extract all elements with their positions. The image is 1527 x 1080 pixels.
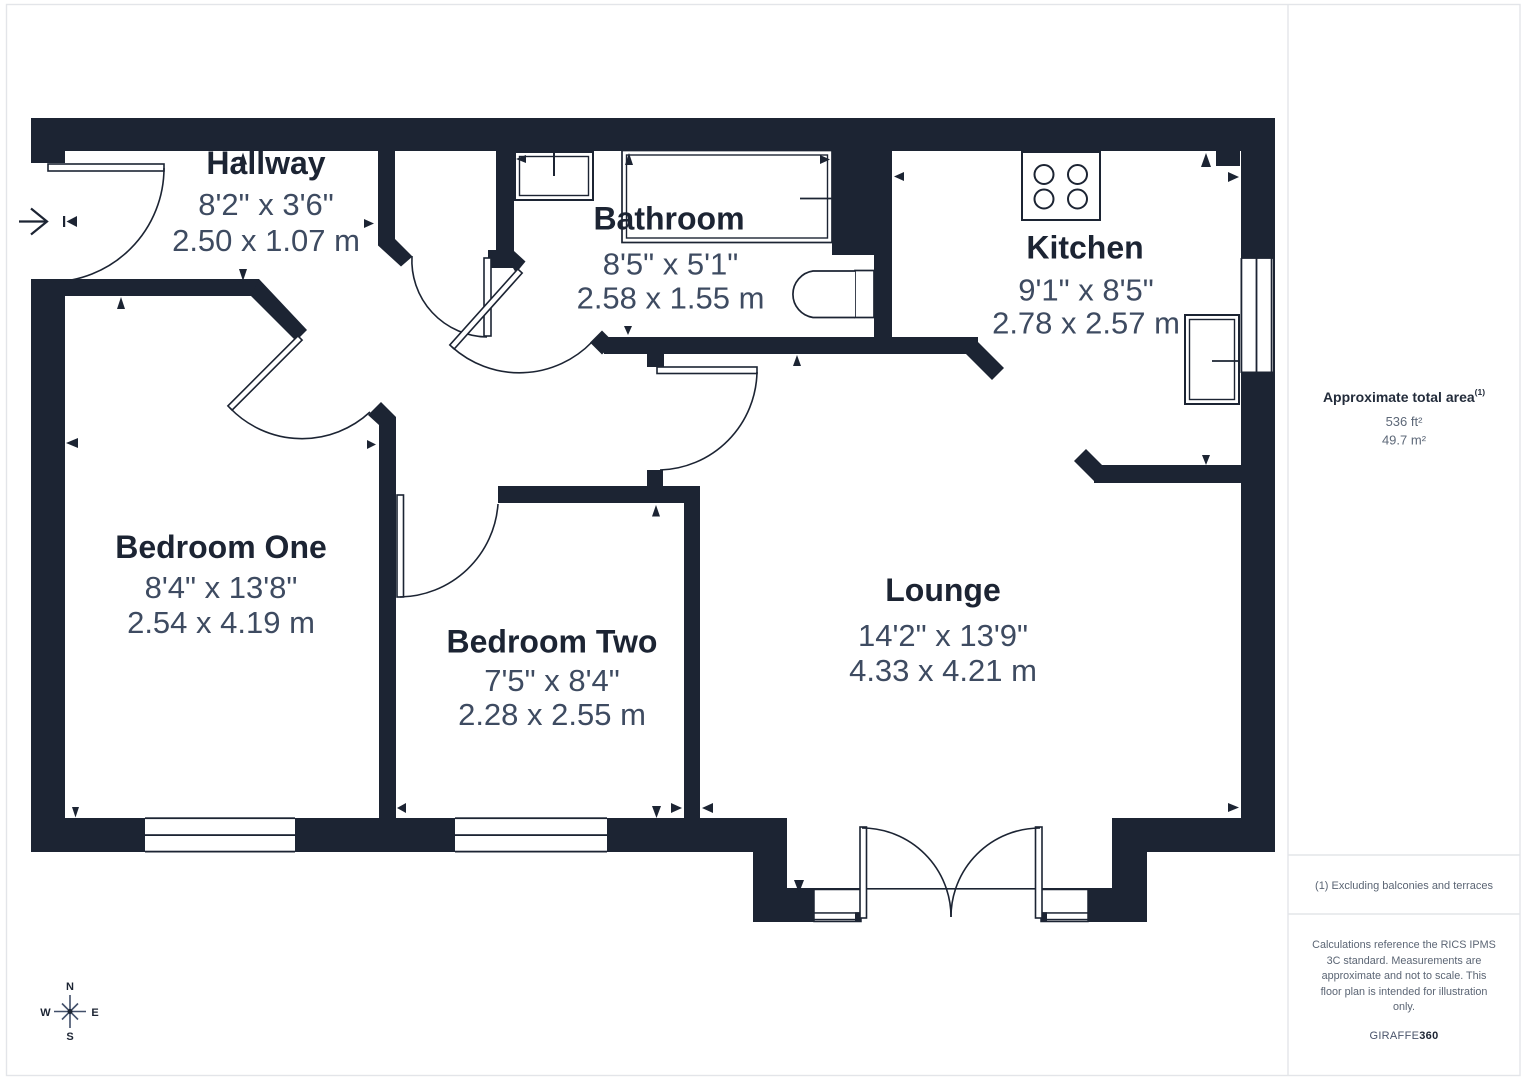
svg-text:8'2" x 3'6": 8'2" x 3'6" xyxy=(198,187,334,222)
svg-text:(1) Excluding balconies and te: (1) Excluding balconies and terraces xyxy=(1315,880,1493,892)
svg-text:3C standard. Measurements are: 3C standard. Measurements are xyxy=(1327,955,1482,967)
svg-text:Lounge: Lounge xyxy=(885,572,1001,608)
svg-text:Approximate total area(1): Approximate total area(1) xyxy=(1323,387,1485,405)
svg-text:GIRAFFE360: GIRAFFE360 xyxy=(1369,1030,1438,1042)
svg-text:S: S xyxy=(66,1031,73,1043)
svg-text:Bathroom: Bathroom xyxy=(593,201,744,237)
svg-text:only.: only. xyxy=(1393,1001,1415,1013)
svg-text:8'5" x 5'1": 8'5" x 5'1" xyxy=(603,247,739,282)
svg-text:floor plan is intended for ill: floor plan is intended for illustration xyxy=(1321,986,1488,998)
svg-text:2.28 x 2.55 m: 2.28 x 2.55 m xyxy=(458,697,646,732)
svg-text:14'2" x 13'9": 14'2" x 13'9" xyxy=(858,618,1028,653)
svg-text:2.58 x 1.55 m: 2.58 x 1.55 m xyxy=(577,281,765,316)
svg-text:49.7 m²: 49.7 m² xyxy=(1382,433,1427,448)
svg-text:Kitchen: Kitchen xyxy=(1026,230,1143,266)
svg-text:Hallway: Hallway xyxy=(206,145,325,181)
svg-text:W: W xyxy=(40,1007,51,1019)
svg-text:Calculations reference the RIC: Calculations reference the RICS IPMS xyxy=(1312,939,1496,951)
svg-text:E: E xyxy=(91,1007,98,1019)
svg-text:Bedroom One: Bedroom One xyxy=(115,529,327,565)
svg-text:approximate and not to scale.: approximate and not to scale. This xyxy=(1322,970,1487,982)
svg-text:Bedroom Two: Bedroom Two xyxy=(447,624,658,660)
svg-text:8'4" x 13'8": 8'4" x 13'8" xyxy=(145,570,298,605)
svg-text:7'5" x 8'4": 7'5" x 8'4" xyxy=(484,663,620,698)
svg-text:2.50 x 1.07 m: 2.50 x 1.07 m xyxy=(172,223,360,258)
svg-text:9'1" x 8'5": 9'1" x 8'5" xyxy=(1018,273,1154,308)
svg-text:4.33 x 4.21 m: 4.33 x 4.21 m xyxy=(849,653,1037,688)
svg-text:2.54 x 4.19 m: 2.54 x 4.19 m xyxy=(127,605,315,640)
svg-text:536 ft²: 536 ft² xyxy=(1386,414,1424,429)
svg-text:2.78 x 2.57 m: 2.78 x 2.57 m xyxy=(992,306,1180,341)
svg-text:N: N xyxy=(66,981,74,993)
